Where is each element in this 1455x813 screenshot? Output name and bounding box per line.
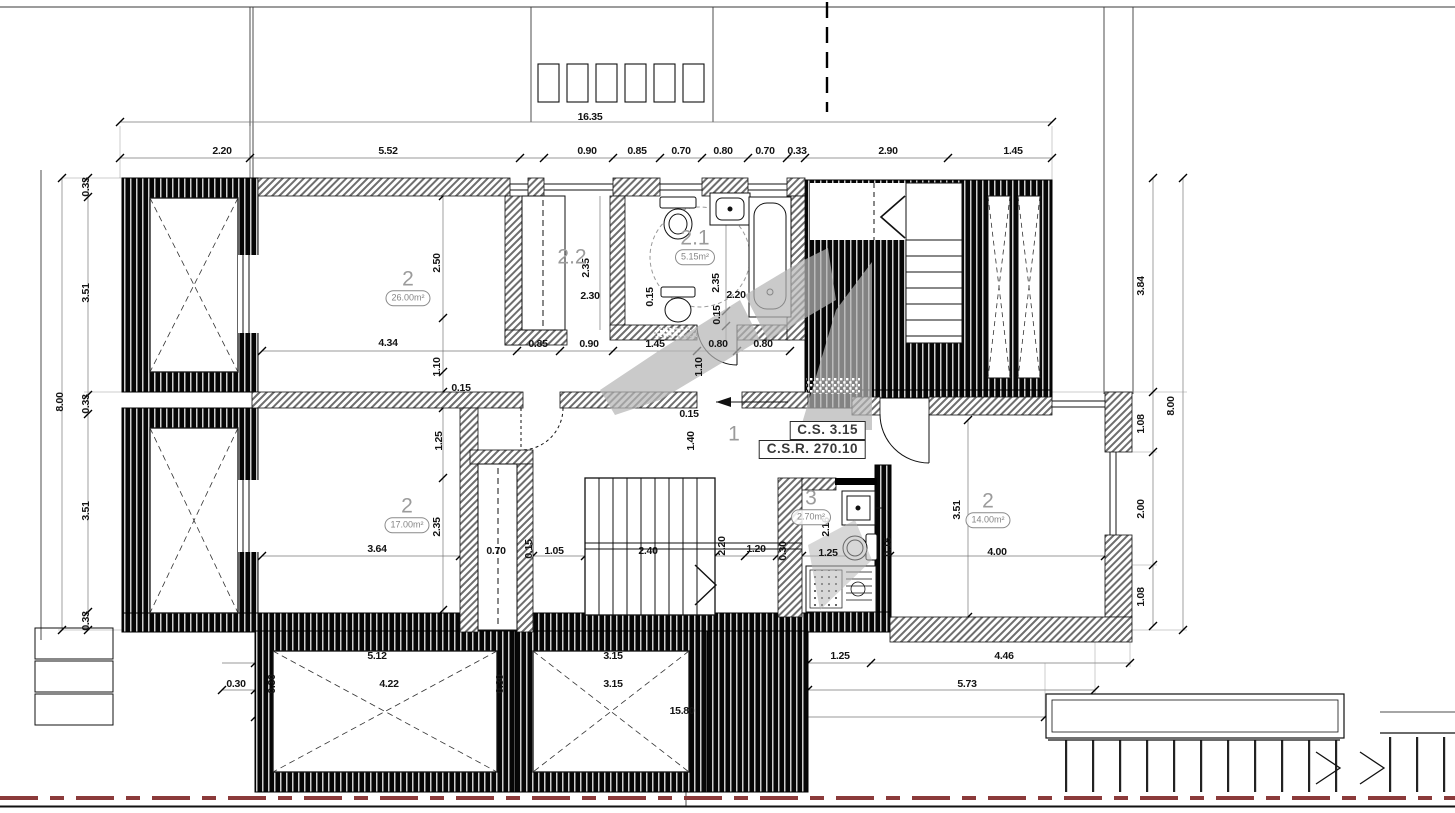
- dimension-label: 5.52: [378, 146, 397, 157]
- dimension-label: 2.90: [878, 146, 897, 157]
- dimension-label: 0.15: [524, 539, 535, 558]
- dimension-label: 0.70: [755, 146, 774, 157]
- dimension-label: 1.45: [1003, 146, 1022, 157]
- dimension-label: 1.10: [432, 357, 443, 376]
- dimension-label: 2.20: [212, 146, 231, 157]
- dimension-label: 0.80: [708, 339, 727, 350]
- dimension-label: 0.33: [787, 146, 806, 157]
- terrace: [1046, 694, 1455, 792]
- dimension-label: 1.40: [686, 431, 697, 450]
- dimension-label: 1.20: [746, 544, 765, 555]
- dimension-label: 1.25: [434, 431, 445, 450]
- planter: [1046, 694, 1344, 738]
- skylight-rectangles: [538, 64, 704, 102]
- dimension-label: 0.15: [712, 305, 723, 324]
- dimension-label: 0.85: [528, 339, 547, 350]
- floor-plan-canvas: C.S. 3.15 C.S.R. 270.10 16.352.205.520.9…: [0, 0, 1455, 813]
- dimension-label: 0.90: [577, 146, 596, 157]
- chevron-icon: [1360, 752, 1384, 784]
- dimension-label: 1.05: [544, 546, 563, 557]
- dimension-label: 2.35: [432, 517, 443, 536]
- dimension-label: 1.45: [645, 339, 664, 350]
- dimension-label: 2.50: [432, 253, 443, 272]
- dimension-label: 0.15: [883, 537, 894, 556]
- dimension-label: 1.08: [1136, 587, 1147, 606]
- dimension-label: 1.10: [694, 357, 705, 376]
- dimension-label: 4.46: [994, 651, 1013, 662]
- dimension-label: 1.25: [818, 548, 837, 559]
- dimension-label: 2.30: [580, 291, 599, 302]
- floor-plan-graphics: [0, 0, 1455, 813]
- watermark-noise: [806, 378, 860, 394]
- dimension-label: 0.70: [671, 146, 690, 157]
- dimension-label: 3.64: [367, 544, 386, 555]
- toilet-icon: [660, 197, 696, 239]
- dimension-label: 2.35: [581, 258, 592, 277]
- fence-right: [1385, 737, 1455, 792]
- dimension-label: 3.51: [952, 500, 963, 519]
- dimension-label: 8.00: [1166, 396, 1177, 415]
- fence-left: [1048, 740, 1340, 792]
- level-height-label: C.S. 3.15: [789, 421, 866, 440]
- dimension-label: 3.15: [603, 651, 622, 662]
- closet: [522, 196, 565, 330]
- dimension-label: 0.80: [713, 146, 732, 157]
- dimension-label: 3.51: [81, 283, 92, 302]
- dimension-label: 0.90: [579, 339, 598, 350]
- dimension-label: 0.30: [495, 674, 506, 693]
- door-hall: [521, 408, 563, 450]
- dimension-label: 5.73: [957, 679, 976, 690]
- dimension-label: 5.12: [367, 651, 386, 662]
- dimension-label: 0.33: [81, 394, 92, 413]
- dimension-label: 2.16: [821, 517, 832, 536]
- dimension-label: 15.80: [670, 706, 695, 717]
- dimension-label: 0.80: [753, 339, 772, 350]
- pocket-door: [835, 478, 877, 485]
- dimension-label: 0.30: [267, 674, 278, 693]
- dimension-label: 2.20: [717, 536, 728, 555]
- dimension-label: 3.15: [603, 679, 622, 690]
- dimension-label: 0.33: [81, 611, 92, 630]
- dimension-label: 2.35: [711, 273, 722, 292]
- dimension-label: 3.51: [81, 501, 92, 520]
- sink-icon: [710, 193, 750, 225]
- dimension-label: 0.70: [486, 546, 505, 557]
- exterior-steps: [35, 628, 113, 725]
- dimension-label: 0.33: [81, 177, 92, 196]
- dimension-label: 0.85: [627, 146, 646, 157]
- bidet-icon: [661, 287, 695, 322]
- door-bedroom: [880, 414, 929, 463]
- dimension-label: 4.22: [379, 679, 398, 690]
- dimension-label: 8.00: [55, 392, 66, 411]
- dimension-label: 2.40: [638, 546, 657, 557]
- level-elevation-label: C.S.R. 270.10: [759, 440, 866, 459]
- dimension-label: 2.20: [726, 290, 745, 301]
- dimension-label: 0.30: [226, 679, 245, 690]
- dimension-label: 2.00: [1136, 499, 1147, 518]
- dimension-label: 1.08: [1136, 414, 1147, 433]
- dimension-label: 4.34: [378, 338, 397, 349]
- dimension-label: 1.25: [830, 651, 849, 662]
- stairs-lower: [585, 478, 802, 615]
- dimension-label: 0.30: [778, 541, 789, 560]
- property-boundary: [0, 798, 1455, 807]
- level-info-box: C.S. 3.15 C.S.R. 270.10: [759, 421, 866, 459]
- dimension-label: 4.00: [987, 547, 1006, 558]
- dimension-label: 16.35: [578, 112, 603, 123]
- dimension-label: 0.15: [679, 409, 698, 420]
- dimension-label: 0.15: [451, 383, 470, 394]
- dimension-label: 0.15: [645, 287, 656, 306]
- dimension-label: 3.84: [1136, 276, 1147, 295]
